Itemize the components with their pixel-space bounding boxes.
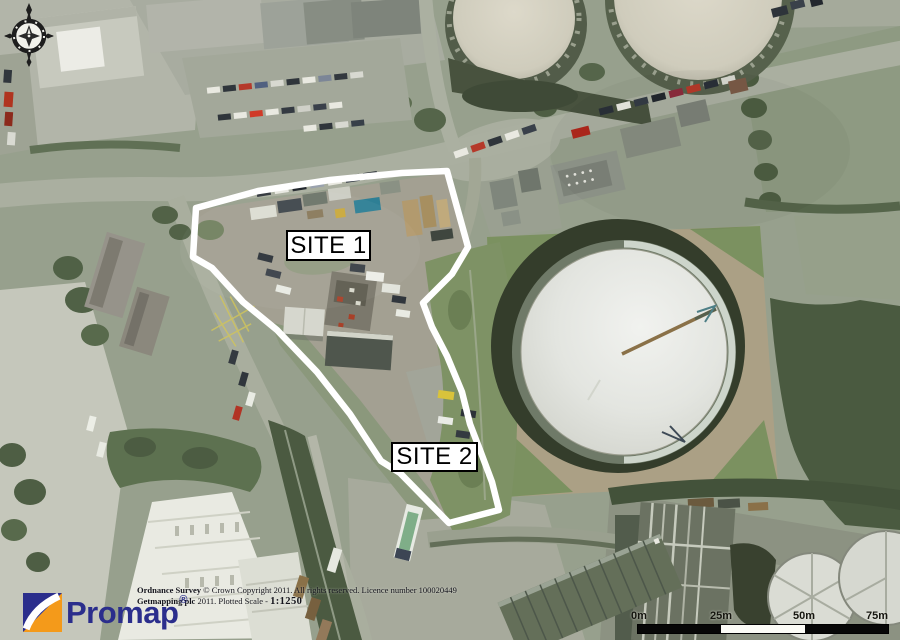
aerial-photo (0, 0, 900, 640)
site-2-label: SITE 2 (391, 442, 478, 472)
compass-rose-icon (2, 2, 56, 68)
plotted-scale-value: 1:1250 (270, 596, 302, 607)
scale-segment-3 (805, 625, 888, 633)
scale-bar: 0m 25m 50m 75m (630, 610, 890, 634)
attribution-line-2-text: 2011. Plotted Scale - (195, 596, 270, 606)
scale-segment-2 (721, 625, 804, 633)
gas-holder (491, 219, 745, 473)
scale-bar-graphic (637, 624, 889, 634)
map-viewport: SITE 1 SITE 2 Ordnance Survey © Crown Co… (0, 0, 900, 640)
attribution-line-1-text: © Crown Copyright 2011. All rights reser… (201, 585, 457, 595)
site-1-label: SITE 1 (286, 230, 371, 261)
promap-logo: Promap ® (23, 593, 188, 632)
scale-label-0m: 0m (631, 610, 647, 622)
scale-segment-1 (638, 625, 721, 633)
registered-trademark: ® (179, 594, 187, 606)
scale-label-75m: 75m (866, 610, 888, 622)
promap-logo-text: Promap (66, 593, 178, 632)
scale-label-50m: 50m (793, 610, 815, 622)
scale-bar-labels: 0m 25m 50m 75m (630, 610, 890, 624)
promap-logo-mark-icon (23, 593, 62, 632)
scale-label-25m: 25m (710, 610, 732, 622)
